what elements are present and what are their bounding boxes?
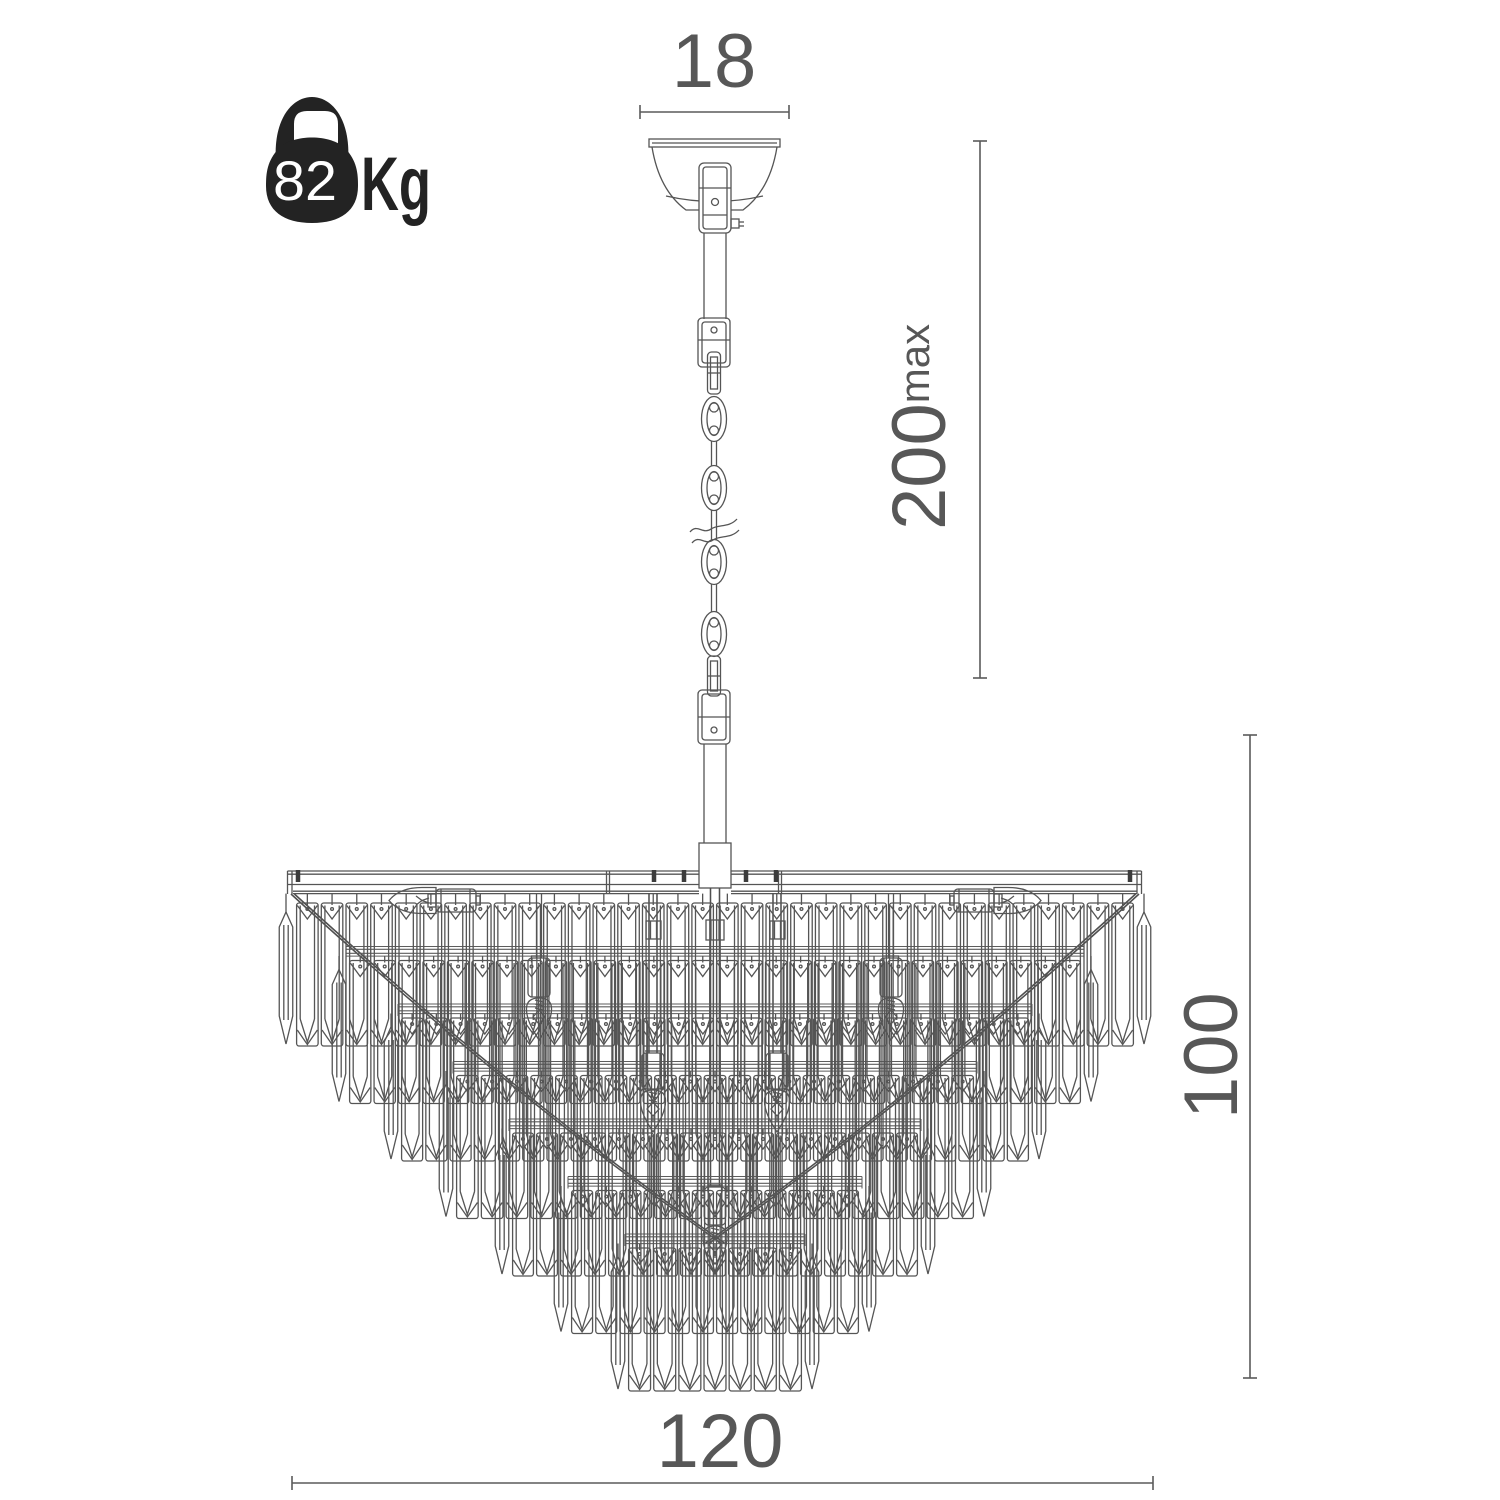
svg-text:120: 120: [657, 1399, 784, 1484]
svg-text:18: 18: [672, 19, 757, 104]
svg-text:82: 82: [273, 149, 337, 212]
svg-text:Kg: Kg: [361, 142, 431, 227]
svg-text:100: 100: [1169, 992, 1254, 1119]
